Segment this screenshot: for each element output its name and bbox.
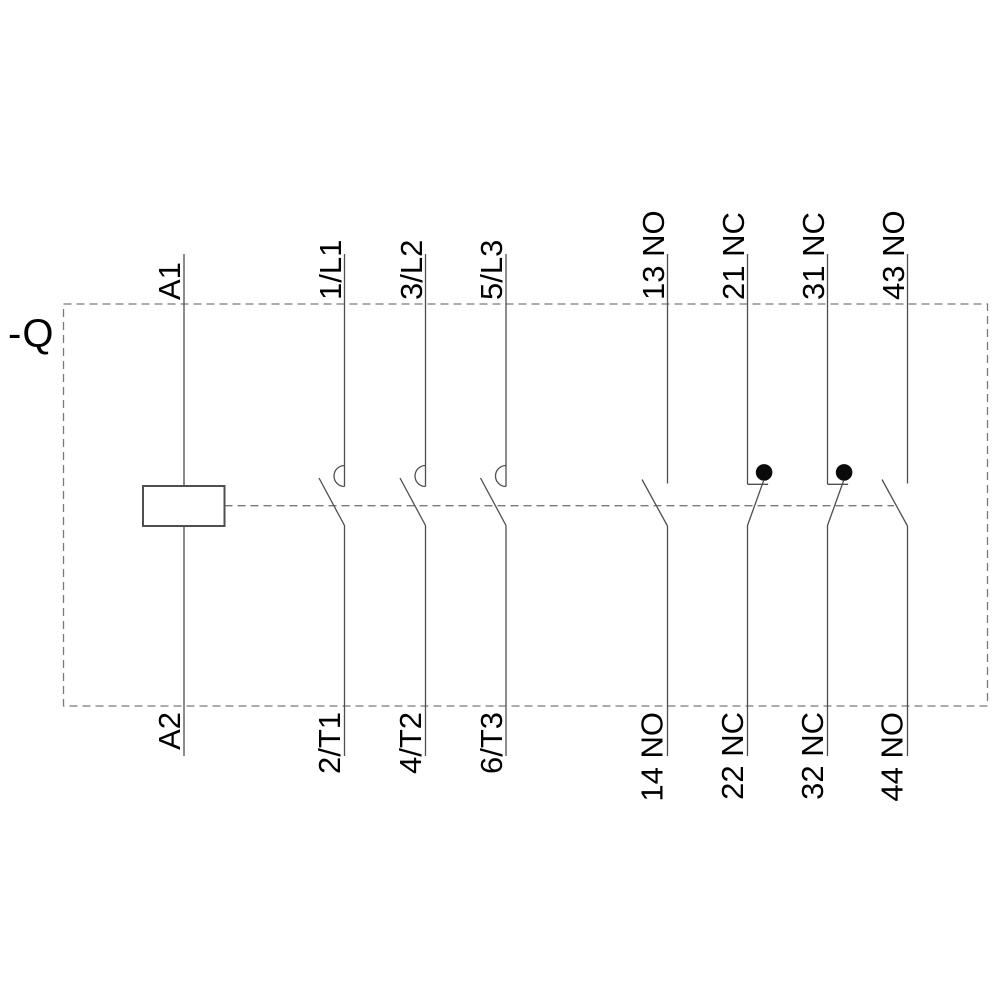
coil-symbol bbox=[143, 486, 225, 526]
main-contact-arc bbox=[415, 466, 425, 487]
terminal-label-13no: 13 NO bbox=[638, 210, 669, 300]
device-designation-label: -Q bbox=[8, 312, 54, 356]
pole-aux-no-13-14 bbox=[642, 254, 668, 756]
main-contact-arc bbox=[496, 466, 507, 487]
terminal-label-22nc: 22 NC bbox=[717, 712, 748, 800]
nc-driven-dot bbox=[756, 464, 773, 481]
terminal-label-6t3: 6/T3 bbox=[476, 712, 507, 774]
pole-main-3l2-4t2 bbox=[400, 254, 426, 756]
pole-aux-nc-21-22 bbox=[748, 254, 773, 756]
terminal-label-4t2: 4/T2 bbox=[395, 712, 426, 774]
terminal-label-3l2: 3/L2 bbox=[396, 240, 427, 300]
pole-coil-a1-a2 bbox=[143, 254, 225, 756]
pole-aux-nc-31-32 bbox=[828, 254, 853, 756]
contact-blade bbox=[642, 480, 668, 527]
terminal-label-a2: A2 bbox=[154, 712, 185, 750]
schematic-page: -Q A1 1/L1 3/L2 5/L3 13 NO 21 NC 31 NC 4… bbox=[0, 0, 1000, 1000]
contact-blade bbox=[748, 481, 764, 526]
terminal-label-a1: A1 bbox=[154, 262, 185, 300]
terminal-label-32nc: 32 NC bbox=[797, 712, 828, 800]
main-contact-arc bbox=[334, 466, 345, 487]
contact-blade bbox=[828, 481, 844, 526]
terminal-label-2t1: 2/T1 bbox=[314, 712, 345, 774]
pole-aux-no-43-44 bbox=[882, 254, 908, 756]
pole-main-5l3-6t3 bbox=[481, 254, 507, 756]
terminal-label-14no: 14 NO bbox=[637, 712, 668, 802]
nc-driven-dot bbox=[836, 464, 853, 481]
terminal-label-21nc: 21 NC bbox=[718, 212, 749, 300]
terminal-label-31nc: 31 NC bbox=[798, 212, 829, 300]
contact-blade bbox=[882, 480, 908, 527]
terminal-label-1l1: 1/L1 bbox=[315, 240, 346, 300]
schematic-canvas bbox=[0, 0, 1000, 1000]
terminal-label-43no: 43 NO bbox=[878, 210, 909, 300]
terminal-label-5l3: 5/L3 bbox=[476, 240, 507, 300]
pole-main-1l1-2t1 bbox=[319, 254, 345, 756]
terminal-label-44no: 44 NO bbox=[877, 712, 908, 802]
